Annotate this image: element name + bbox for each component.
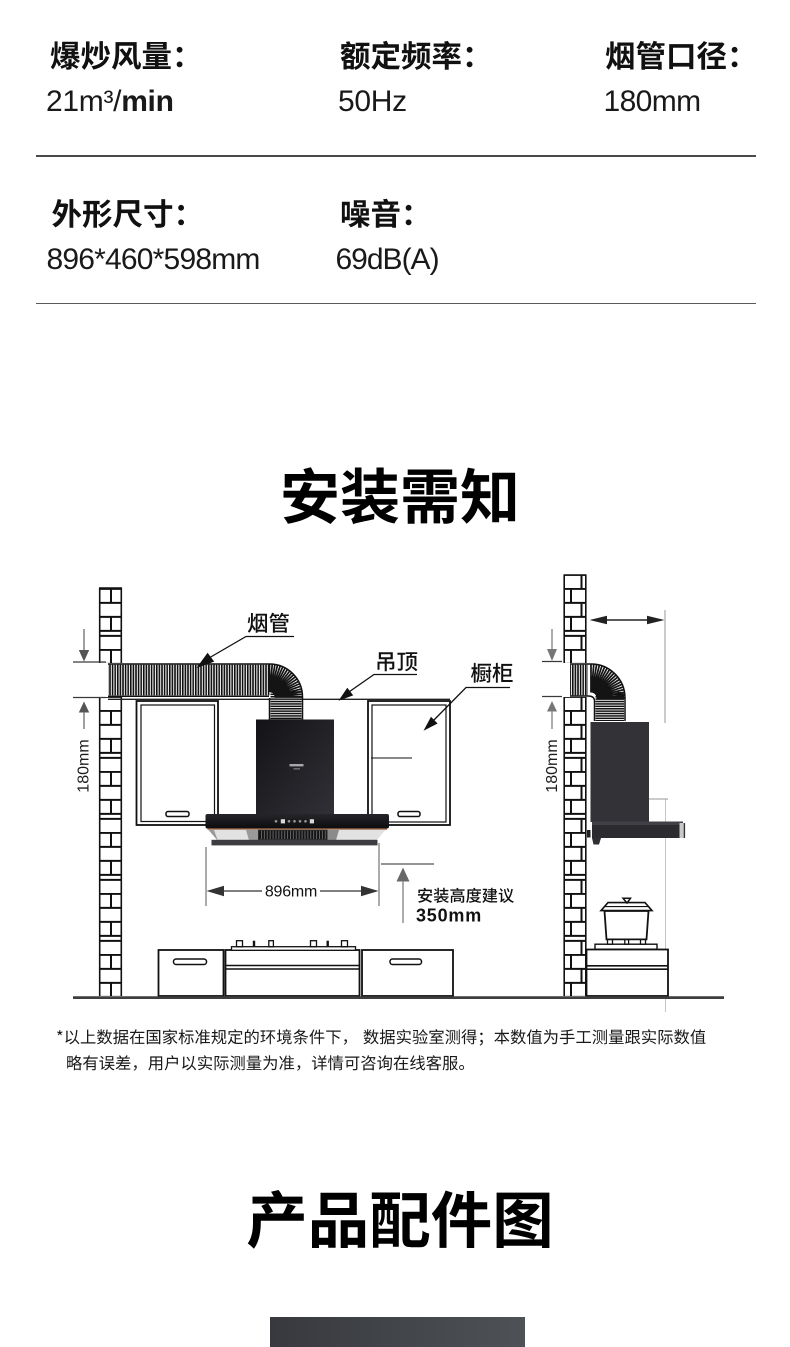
svg-text:180mm: 180mm xyxy=(76,739,93,792)
svg-text:350mm: 350mm xyxy=(416,906,482,926)
svg-text:896mm: 896mm xyxy=(265,884,317,901)
svg-text:180mm: 180mm xyxy=(544,739,561,792)
